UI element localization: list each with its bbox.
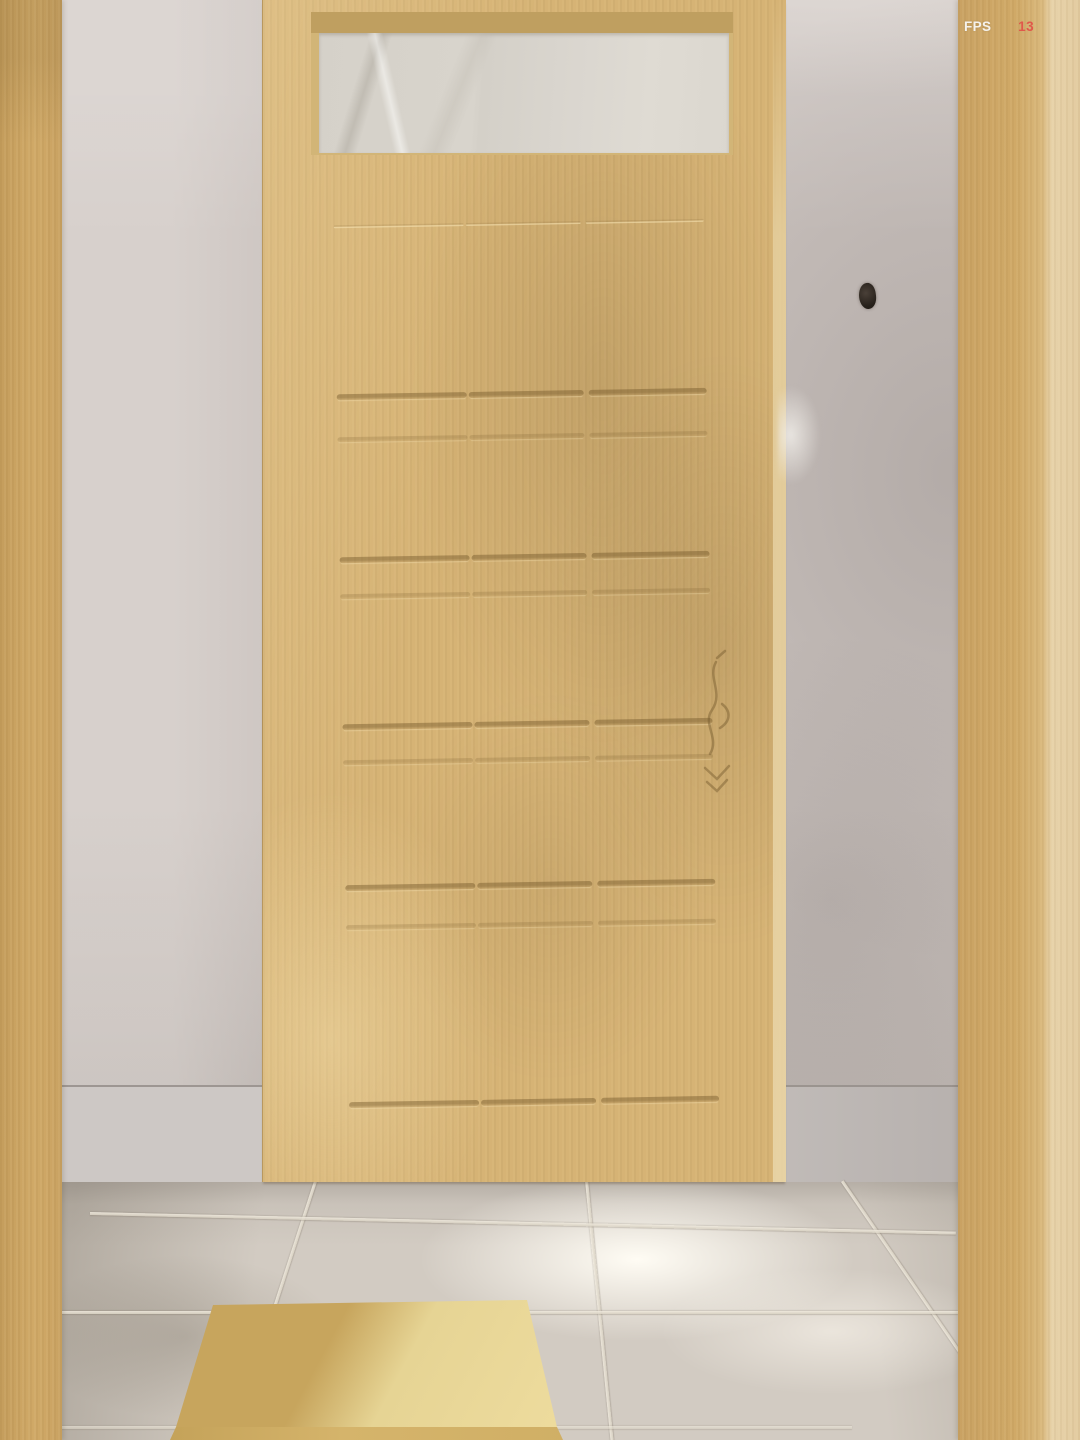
- door-groove: [589, 388, 707, 396]
- door-groove: [597, 879, 715, 887]
- wooden-door[interactable]: [262, 0, 786, 1182]
- door-groove: [475, 756, 590, 763]
- game-viewport[interactable]: FPS 13: [0, 0, 1080, 1440]
- door-groove: [469, 433, 584, 440]
- door-groove: [346, 923, 476, 930]
- fps-value: 13: [1018, 19, 1034, 35]
- door-groove: [340, 555, 470, 563]
- door-groove: [598, 919, 716, 926]
- door-groove-row: [248, 218, 771, 235]
- door-groove: [337, 392, 467, 400]
- door-groove: [589, 431, 707, 438]
- door-gap-light: [778, 386, 820, 484]
- door-groove: [472, 553, 587, 561]
- door-panel-grooves: [244, 0, 788, 1183]
- door-groove: [349, 1100, 479, 1108]
- right-door-frame-pillar: [958, 0, 1080, 1440]
- door-handle[interactable]: [691, 640, 743, 800]
- door-groove: [334, 223, 464, 228]
- wooden-box[interactable]: [158, 1296, 570, 1440]
- door-groove: [345, 883, 475, 891]
- door-groove-row: [260, 918, 783, 935]
- door-groove-row: [251, 430, 774, 447]
- door-groove-row: [259, 878, 782, 895]
- door-groove: [469, 390, 584, 398]
- door-groove-row: [263, 1095, 786, 1112]
- door-groove: [591, 551, 709, 559]
- door-groove-row: [254, 587, 777, 604]
- door-groove: [342, 722, 472, 730]
- door-groove-row: [251, 387, 774, 404]
- left-door-frame-pillar: [0, 0, 62, 1440]
- door-groove: [586, 219, 704, 224]
- door-groove: [466, 221, 581, 226]
- door-groove: [340, 592, 470, 599]
- door-groove: [472, 590, 587, 597]
- door-groove: [481, 1098, 596, 1106]
- door-groove: [477, 881, 592, 889]
- wooden-box-top: [158, 1296, 570, 1440]
- door-groove: [592, 588, 710, 595]
- fps-counter: FPS 13: [964, 19, 1034, 35]
- fps-label: FPS: [964, 19, 991, 35]
- door-groove: [337, 435, 467, 442]
- door-groove: [601, 1096, 719, 1104]
- door-groove-row: [254, 550, 777, 567]
- tile-grout-line: [90, 1212, 956, 1235]
- door-groove: [474, 720, 589, 728]
- door-groove: [478, 921, 593, 928]
- door-edge-highlight: [773, 0, 786, 1182]
- tile-grout-line: [585, 1180, 614, 1440]
- door-groove: [343, 758, 473, 765]
